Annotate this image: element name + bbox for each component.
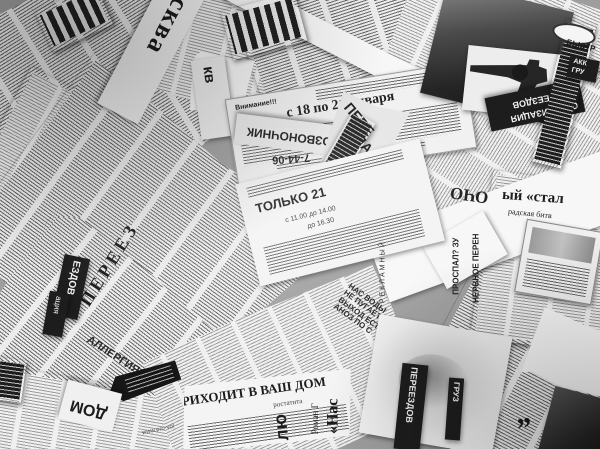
attention-label: Внимание!!! — [235, 98, 278, 112]
gruz-vertical-text: ГРУЗ — [451, 382, 461, 402]
ezdov-text: ЕЗДОВ — [63, 259, 81, 295]
dom-text: ДОМ — [69, 395, 109, 421]
right-ad-box — [514, 219, 600, 305]
reklamny-text: РЕКЛАМНЫЙ — [380, 240, 387, 303]
pereezdov-vertical-text: ПЕРЕЕЗДОВ — [403, 367, 418, 424]
ad-photo-block — [528, 227, 596, 264]
nas-quote-text: «Нас — [325, 399, 342, 435]
ad-text-lines — [522, 258, 590, 297]
rostatita-text: ростатита — [273, 398, 303, 409]
nervnoe-text: НЕРВНОЕ ПЕРЕН — [472, 234, 480, 303]
face-photo-clipping — [359, 314, 513, 449]
gru-text: ГРУ — [571, 67, 585, 77]
prospal-text: ПРОСПАЛ? ЗУ — [452, 238, 460, 295]
schedule-line-2: до 16.30 — [307, 217, 335, 231]
aciya-text: ация — [51, 295, 62, 314]
kv-text: кв — [200, 65, 218, 84]
roman-text: Роман Г — [311, 403, 320, 434]
lyu-text: лю — [271, 413, 293, 442]
upside-down-phone: 7-44-06 — [272, 151, 311, 165]
newspaper-collage-photo: осква кв Внимание!!! с 18 по 21 января П… — [0, 0, 600, 449]
ocho-text: ОЧО — [449, 183, 490, 206]
